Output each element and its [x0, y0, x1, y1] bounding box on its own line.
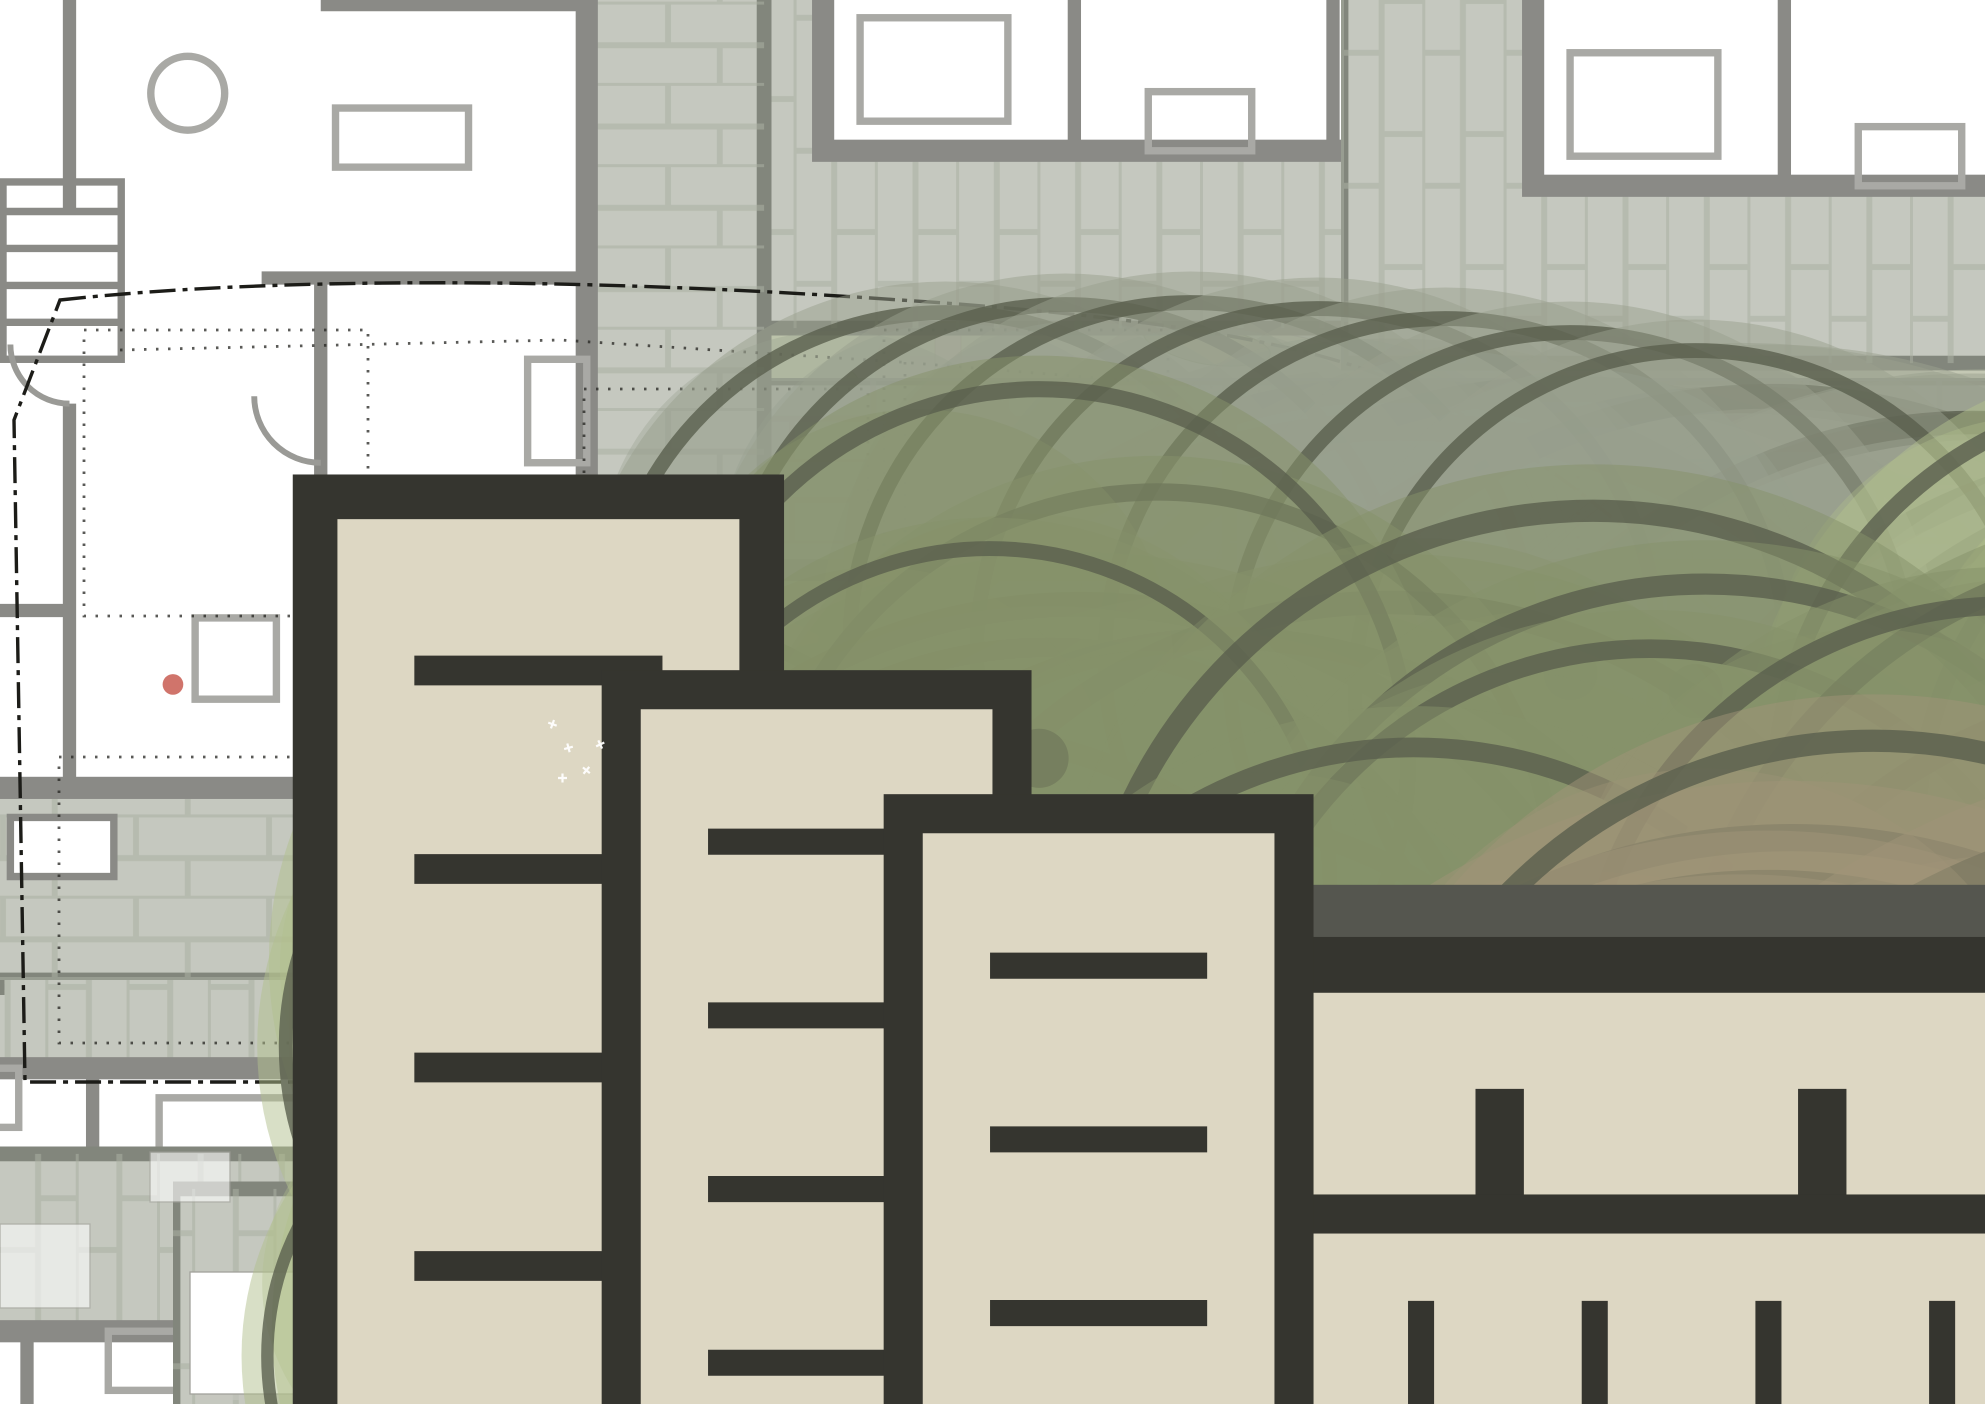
context-building — [150, 1152, 230, 1202]
site-plan-canvas: B B — [0, 0, 1985, 1404]
context-building — [0, 1224, 90, 1308]
bike-rack-icon — [903, 814, 1294, 1404]
site-plan-svg: B B — [0, 0, 1985, 1404]
